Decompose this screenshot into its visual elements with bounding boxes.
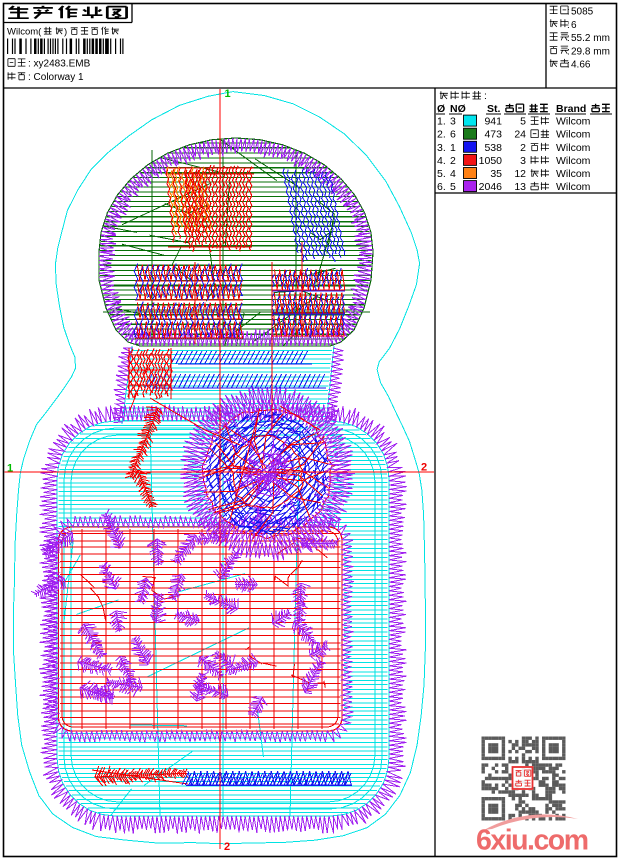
svg-text:): ) [64,27,67,38]
svg-text:2: 2 [224,841,230,853]
svg-text:6: 6 [450,129,456,141]
svg-text:NØ: NØ [450,103,466,115]
svg-text:473: 473 [484,129,502,141]
svg-text::: : [484,90,487,102]
svg-text:: xy2483.EMB: : xy2483.EMB [28,59,91,70]
svg-text:Wilcom: Wilcom [556,129,591,141]
svg-text:Wilcom: Wilcom [556,168,591,180]
svg-text::: : [567,60,570,71]
svg-text:Wilcom: Wilcom [556,142,591,154]
svg-text:Wilcom(: Wilcom( [7,27,42,38]
svg-text:4.66: 4.66 [571,60,591,71]
svg-text:Brand: Brand [556,103,586,115]
svg-text:3.: 3. [437,142,446,154]
svg-text:1: 1 [450,142,456,154]
svg-text:Wilcom: Wilcom [556,155,591,167]
svg-text:3: 3 [450,116,456,128]
svg-text:55.2 mm: 55.2 mm [571,33,610,44]
svg-text:4: 4 [450,168,456,180]
svg-text:6: 6 [571,20,577,31]
svg-text:29.8 mm: 29.8 mm [571,46,610,57]
svg-text:5.: 5. [437,168,446,180]
svg-text:2.: 2. [437,129,446,141]
svg-text:35: 35 [490,168,502,180]
svg-text:Wilcom: Wilcom [556,181,591,193]
svg-text:2: 2 [520,142,526,154]
svg-text:St.: St. [487,103,501,115]
svg-text:2: 2 [421,462,427,474]
svg-text::: : [567,46,570,57]
svg-text::: : [567,33,570,44]
svg-text:3: 3 [520,155,526,167]
svg-text:1050: 1050 [479,155,503,167]
svg-text:12: 12 [514,168,526,180]
svg-text:2: 2 [450,155,456,167]
svg-text:941: 941 [484,116,502,128]
svg-text:5085: 5085 [571,7,594,18]
svg-text:6xiu.com: 6xiu.com [476,825,588,857]
svg-text:: Colorway 1: : Colorway 1 [28,72,84,83]
svg-text:24: 24 [514,129,526,141]
svg-text::: : [567,7,570,18]
svg-text:1.: 1. [437,116,446,128]
svg-text:13: 13 [514,181,526,193]
svg-text:1: 1 [225,88,231,100]
svg-text:Ø: Ø [437,103,445,115]
svg-text:1: 1 [7,463,13,475]
svg-text:538: 538 [484,142,502,154]
svg-text::: : [567,20,570,31]
svg-text:5: 5 [450,181,456,193]
svg-text:Wilcom: Wilcom [556,116,591,128]
svg-text:4.: 4. [437,155,446,167]
svg-text:6.: 6. [437,181,446,193]
svg-text:2046: 2046 [479,181,503,193]
svg-text:5: 5 [520,116,526,128]
